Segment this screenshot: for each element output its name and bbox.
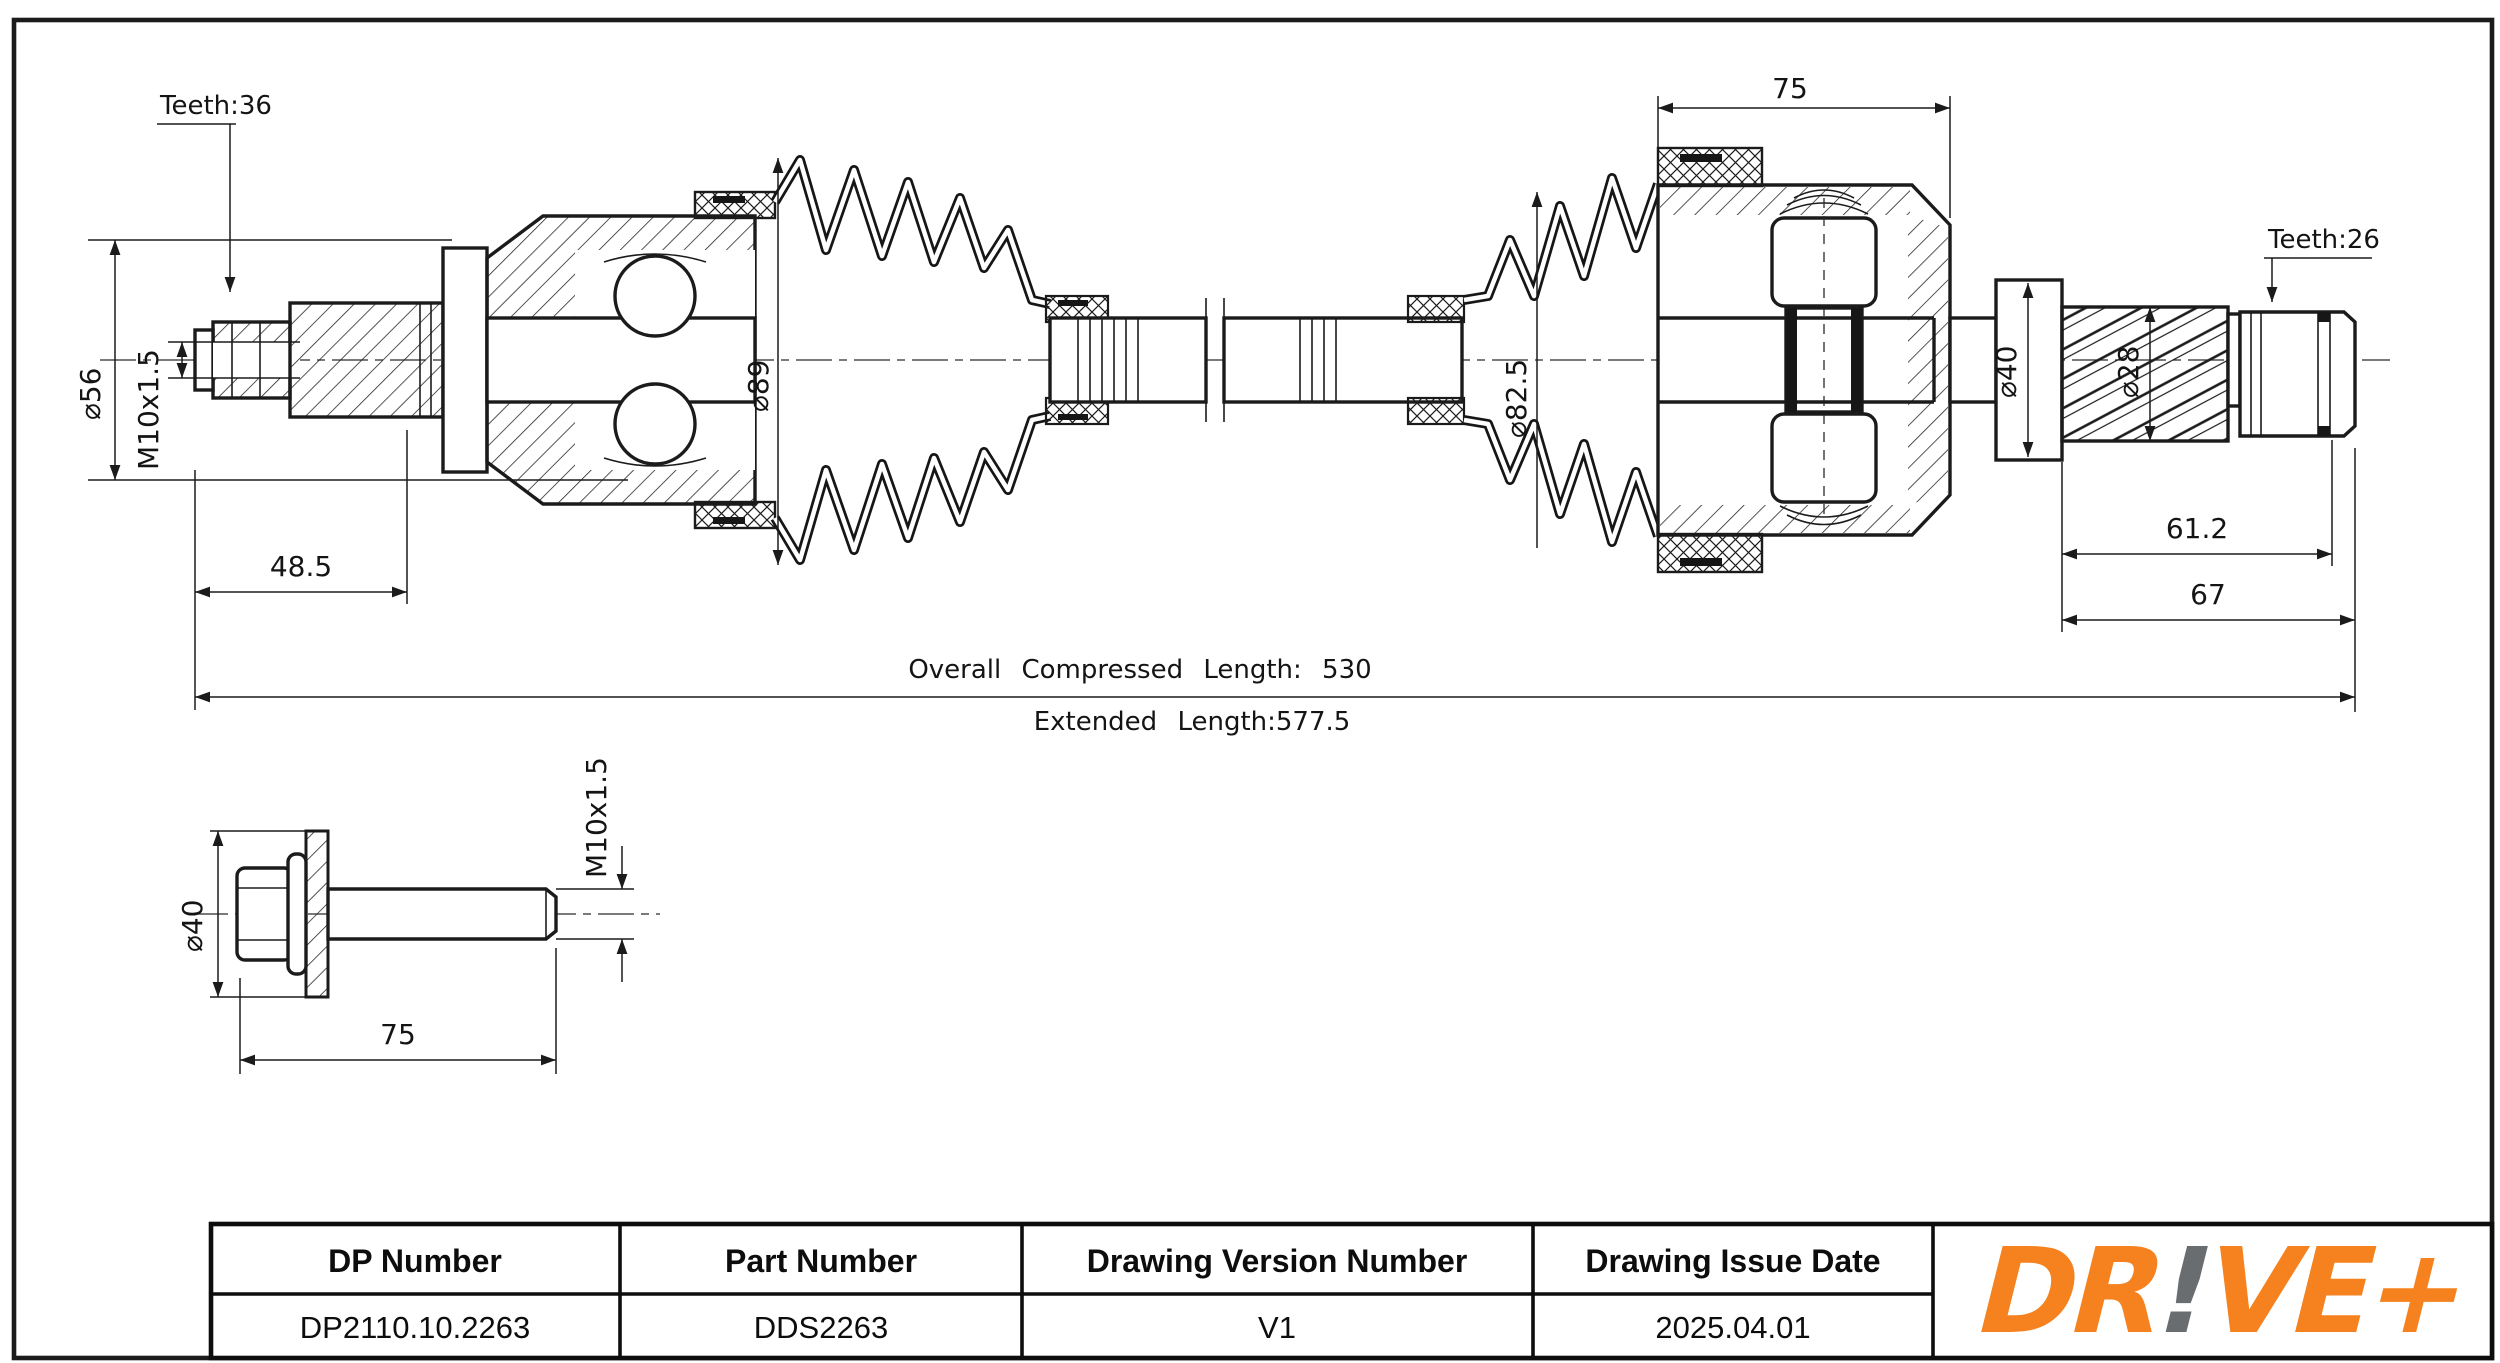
bolt-thread-label: M10x1.5 <box>580 757 613 878</box>
dim48-label: 48.5 <box>270 550 332 583</box>
bolt-shank <box>328 889 556 939</box>
interconnecting-shaft <box>1050 296 1464 424</box>
m10-left-label: M10x1.5 <box>132 349 165 470</box>
dia40-label: ⌀40 <box>1990 346 2023 399</box>
dia56-label: ⌀56 <box>74 368 107 421</box>
cv-ball-bottom <box>615 384 695 464</box>
bolt-washer <box>306 831 328 997</box>
logo-part2: VE+ <box>2191 1224 2481 1361</box>
cv-ball-top <box>615 256 695 336</box>
header-part-number: Part Number <box>725 1243 917 1279</box>
bolt-length-label: 75 <box>380 1018 416 1051</box>
svg-text:DR!VE+: DR!VE+ <box>1963 1224 2480 1361</box>
teeth-right-label: Teeth:26 <box>2267 225 2380 255</box>
dim67-label: 67 <box>2190 578 2226 611</box>
drawing-sheet: Teeth:36 Teeth:26 ⌀56 M10x1.5 ⌀89 ⌀82.5 <box>0 0 2500 1363</box>
sheet-border <box>14 20 2492 1358</box>
dim61-label: 61.2 <box>2166 512 2228 545</box>
overall-length-label: Overall Compressed Length: 530 <box>908 655 1371 685</box>
teeth-left-label: Teeth:36 <box>159 91 272 121</box>
dim75-label: 75 <box>1772 72 1808 105</box>
left-stub-shaft <box>195 248 487 472</box>
brand-logo: DR!VE+ <box>1963 1224 2480 1361</box>
value-dp-number: DP2110.10.2263 <box>300 1310 530 1345</box>
bolt-dia40-label: ⌀40 <box>176 900 209 953</box>
main-shaft-view: Teeth:36 Teeth:26 ⌀56 M10x1.5 ⌀89 ⌀82.5 <box>74 72 2390 737</box>
value-drawing-version: V1 <box>1258 1310 1296 1345</box>
header-dp-number: DP Number <box>328 1243 502 1279</box>
header-issue-date: Drawing Issue Date <box>1585 1243 1880 1279</box>
inner-joint-housing <box>1658 148 1950 572</box>
dia82-label: ⌀82.5 <box>1500 359 1533 438</box>
dia89-label: ⌀89 <box>742 360 775 413</box>
extended-length-label: Extended Length:577.5 <box>1034 707 1351 737</box>
spline-section-teeth26 <box>2240 312 2355 436</box>
bolt-hex-head <box>237 868 292 960</box>
header-drawing-version: Drawing Version Number <box>1087 1243 1468 1279</box>
outer-cv-joint-housing <box>487 192 775 528</box>
threaded-section-d28 <box>2062 307 2228 441</box>
bolt-detail-view: ⌀40 M10x1.5 75 <box>176 757 660 1074</box>
title-block: DP Number Part Number Drawing Version Nu… <box>211 1224 2492 1361</box>
cv-axle-technical-drawing: Teeth:36 Teeth:26 ⌀56 M10x1.5 ⌀89 ⌀82.5 <box>0 0 2500 1363</box>
value-issue-date: 2025.04.01 <box>1655 1310 1810 1345</box>
value-part-number: DDS2263 <box>754 1310 888 1345</box>
dia28-label: ⌀28 <box>2112 346 2145 399</box>
